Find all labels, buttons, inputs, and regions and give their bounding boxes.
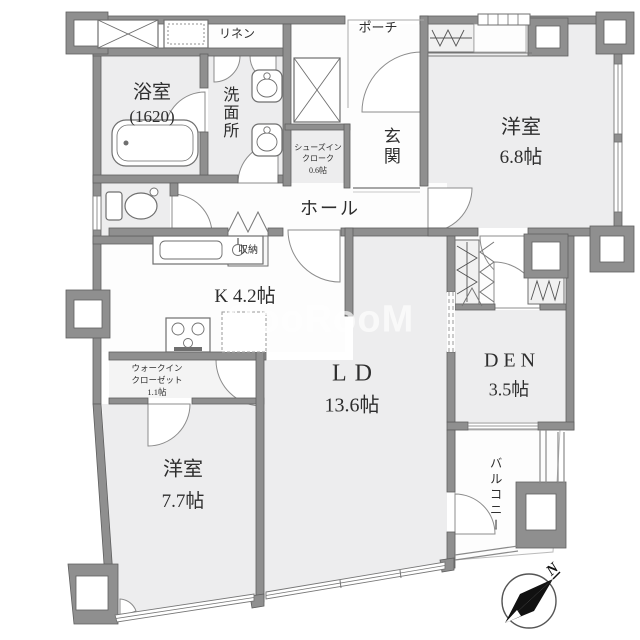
ld-size-label: 13.6帖 [325,396,380,417]
den-dashed-opening [447,292,455,352]
den-size-label: 3.5帖 [489,381,530,400]
bathtub [112,120,198,166]
bedroom2-size-label: 7.7帖 [162,492,205,512]
stove [166,318,210,352]
ld-label: LD [332,361,380,386]
storage-label: 収納 [238,246,258,257]
floor-plan: 浴室 (1620) 洗面所 リネン ポーチ 玄関 シューズイン クローク 0.6… [0,0,640,640]
sink-top [252,70,282,102]
wic-label-2: クローゼット [131,375,182,385]
washroom-label: 洗面所 [220,86,237,140]
watermark: GooRooM [226,299,415,342]
shoes-cloak-label-2: クローク [302,154,334,164]
wic-label-1: ウォークイン [131,363,182,373]
bath-label: 浴室 [133,83,171,103]
compass [502,572,560,628]
bath-size-label: (1620) [129,108,174,126]
bedroom2-label: 洋室 [163,460,203,481]
den-label: DEN [484,351,540,372]
linen-label: リネン [219,28,255,41]
shoes-cloak-label-3: 0.6帖 [309,166,327,176]
balcony-label: バルコニー [487,456,500,534]
entrance-label: 玄関 [381,127,399,167]
bedroom2-floor [102,404,256,621]
sink-bottom [252,124,282,156]
bedroom1-label: 洋室 [501,118,541,139]
shoes-cloak-label-1: シューズイン [294,143,342,153]
louver-window [478,14,530,25]
wic-label-3: 1.1帖 [147,387,166,397]
porch-label: ポーチ [358,21,397,35]
bedroom1-size-label: 6.8帖 [500,148,543,168]
hall-label: ホール [300,200,360,219]
